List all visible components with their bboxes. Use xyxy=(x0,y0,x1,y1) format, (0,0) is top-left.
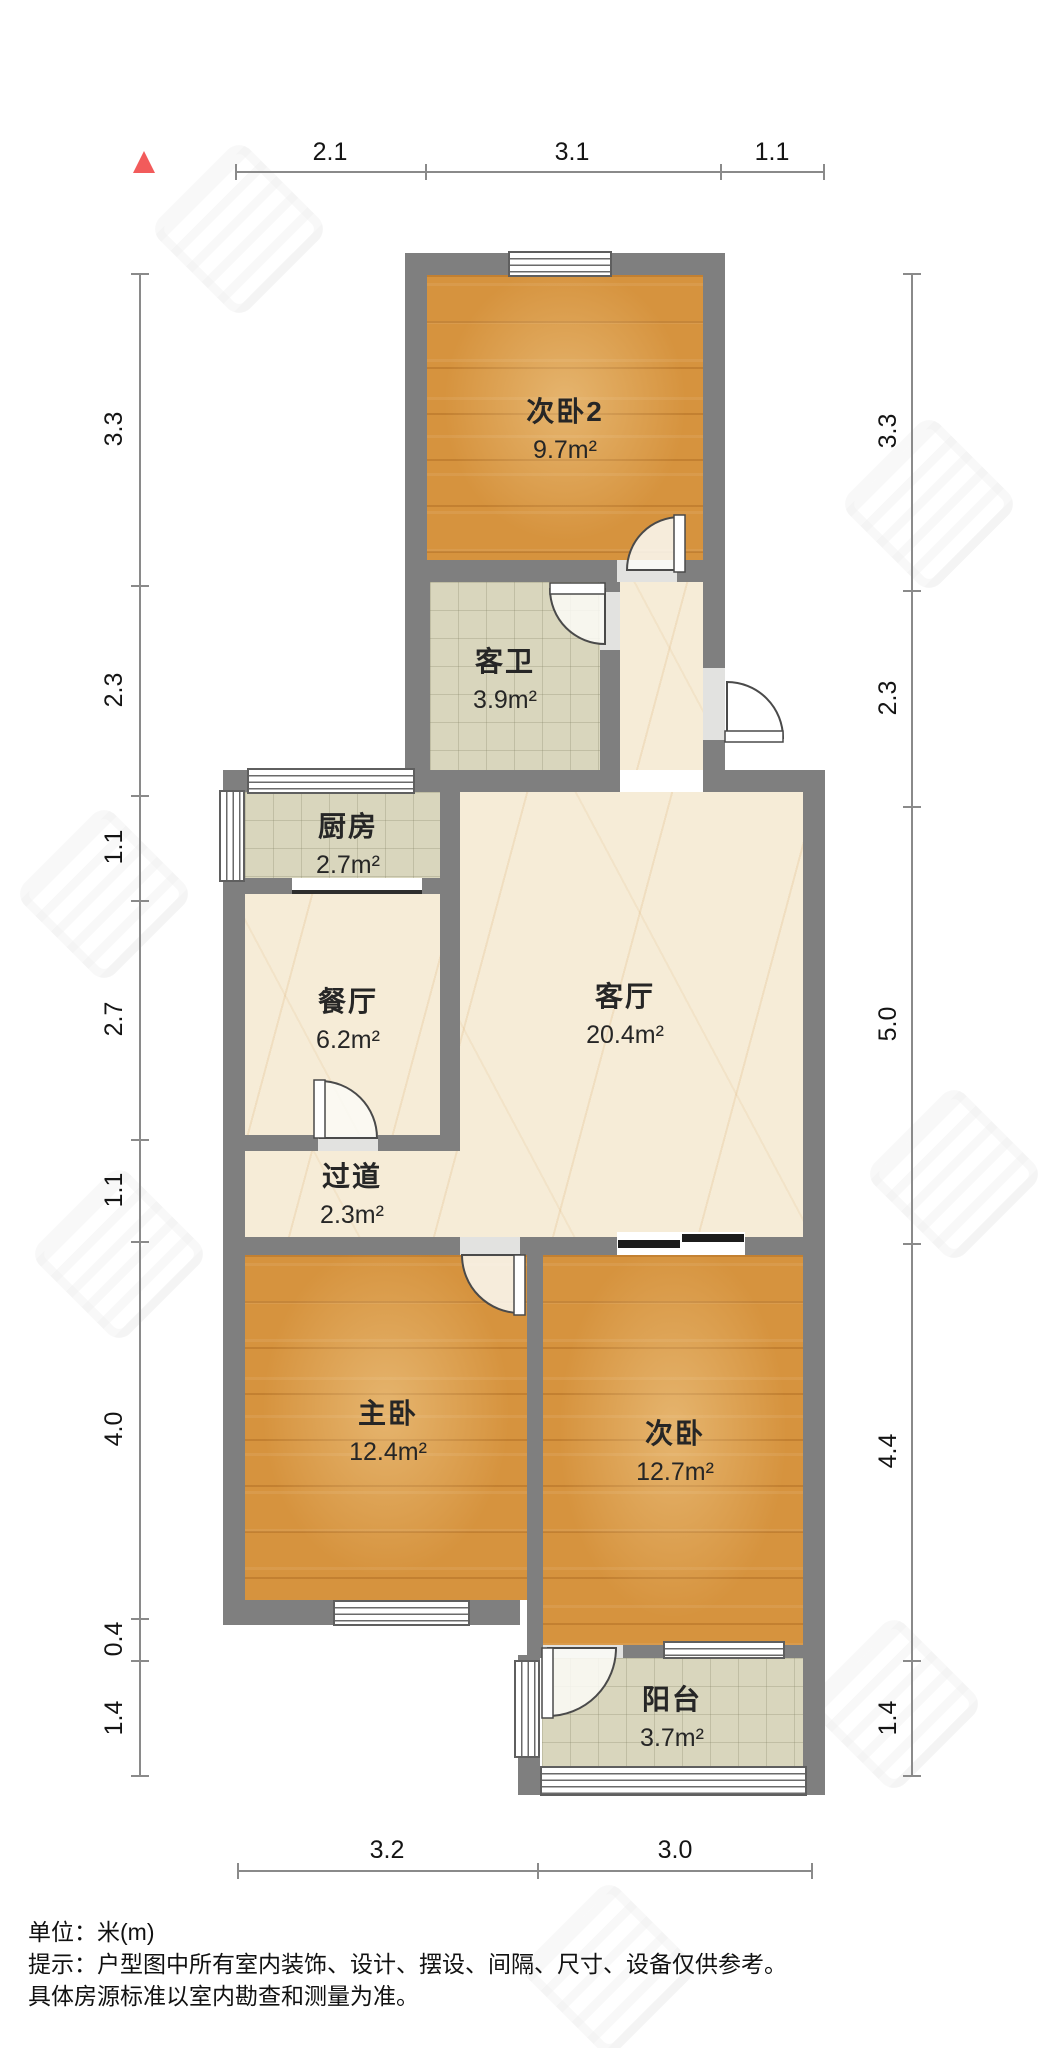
room-label-balcony: 阳台 3.7m² xyxy=(572,1678,772,1753)
dimension-label: 3.1 xyxy=(537,138,607,166)
dimension-tick xyxy=(131,795,149,797)
dimension-label: 3.0 xyxy=(640,1836,710,1864)
dimension-tick xyxy=(811,1863,813,1879)
room-label-master: 主卧 12.4m² xyxy=(288,1392,488,1467)
dimension-tick xyxy=(131,1139,149,1141)
room-name: 次卧 xyxy=(575,1412,775,1452)
sliding-door-panel xyxy=(682,1234,744,1242)
room-label-living: 客厅 20.4m² xyxy=(525,975,725,1050)
door-swing xyxy=(320,1081,377,1138)
room-name: 厨房 xyxy=(248,805,448,845)
dimension-tick xyxy=(903,806,921,808)
door-leaf xyxy=(314,1080,325,1138)
dimension-tick xyxy=(237,1863,239,1879)
door-swing xyxy=(462,1255,520,1313)
dimension-label: 2.7 xyxy=(100,984,128,1054)
room-label-bathroom: 客卫 3.9m² xyxy=(405,640,605,715)
room-label-dining: 餐厅 6.2m² xyxy=(248,980,448,1055)
dimension-tick xyxy=(131,1660,149,1662)
dimension-label: 3.3 xyxy=(100,394,128,464)
dimension-tick xyxy=(903,1775,921,1777)
dimension-tick xyxy=(131,900,149,902)
room-label-kitchen: 厨房 2.7m² xyxy=(248,805,448,880)
dimension-label: 1.4 xyxy=(874,1683,902,1753)
room-name: 阳台 xyxy=(572,1678,772,1718)
dimension-tick xyxy=(131,1241,149,1243)
dimension-tick xyxy=(537,1863,539,1879)
room-name: 主卧 xyxy=(288,1392,488,1432)
dimension-tick xyxy=(720,164,722,180)
door-leaf xyxy=(542,1648,553,1718)
dimension-line-bottom xyxy=(237,1870,813,1872)
room-label-hallway: 过道 2.3m² xyxy=(252,1155,452,1230)
dimension-tick xyxy=(903,590,921,592)
room-label-bedroom: 次卧 12.7m² xyxy=(575,1412,775,1487)
dimension-label: 3.2 xyxy=(352,1836,422,1864)
dimension-label: 4.0 xyxy=(100,1394,128,1464)
dimension-label: 3.3 xyxy=(874,396,902,466)
room-name: 客卫 xyxy=(405,640,605,680)
unit-note: 单位：米(m) xyxy=(28,1916,154,1948)
room-area: 20.4m² xyxy=(525,1021,725,1050)
door-swing xyxy=(627,517,680,570)
room-area: 3.7m² xyxy=(572,1724,772,1753)
dimension-label: 1.1 xyxy=(100,1155,128,1225)
dimension-tick xyxy=(131,273,149,275)
dimension-tick xyxy=(903,1660,921,1662)
room-area: 12.7m² xyxy=(575,1458,775,1487)
door-swing xyxy=(727,682,783,738)
room-label-bedroom2: 次卧2 9.7m² xyxy=(465,390,665,465)
dimension-tick xyxy=(235,164,237,180)
dimension-tick xyxy=(425,164,427,180)
room-name: 次卧2 xyxy=(465,390,665,430)
dimension-tick xyxy=(823,164,825,180)
sliding-door-panel xyxy=(618,1240,680,1248)
room-area: 2.7m² xyxy=(248,851,448,880)
disclaimer-line1: 提示：户型图中所有室内装饰、设计、摆设、间隔、尺寸、设备仅供参考。 xyxy=(28,1948,787,1980)
dimension-tick xyxy=(131,585,149,587)
dimension-line-right xyxy=(911,273,913,1777)
door-leaf xyxy=(674,515,685,572)
dimension-label: 1.4 xyxy=(100,1683,128,1753)
dimension-label: 2.3 xyxy=(100,655,128,725)
dimension-tick xyxy=(131,1775,149,1777)
room-area: 3.9m² xyxy=(405,686,605,715)
room-name: 客厅 xyxy=(525,975,725,1015)
room-area: 9.7m² xyxy=(465,436,665,465)
dimension-label: 1.1 xyxy=(100,812,128,882)
dimension-tick xyxy=(903,1243,921,1245)
dimension-line-left xyxy=(139,273,141,1777)
door-leaf xyxy=(550,583,605,594)
dimension-label: 5.0 xyxy=(874,989,902,1059)
dimension-label: 2.3 xyxy=(874,663,902,733)
dimension-label: 2.1 xyxy=(295,138,365,166)
doorway-threshold xyxy=(703,668,725,740)
floorplan-canvas: 次卧2 9.7m² 客卫 3.9m² 厨房 2.7m² 餐厅 6.2m² 客厅 … xyxy=(0,0,1053,2048)
door-swing xyxy=(550,589,605,644)
dimension-label: 1.1 xyxy=(737,138,807,166)
room-area: 12.4m² xyxy=(288,1438,488,1467)
room-name: 过道 xyxy=(252,1155,452,1195)
dimension-label: 4.4 xyxy=(874,1416,902,1486)
dimension-label: 0.4 xyxy=(100,1604,128,1674)
room-area: 2.3m² xyxy=(252,1201,452,1230)
dimension-tick xyxy=(903,273,921,275)
room-name: 餐厅 xyxy=(248,980,448,1020)
dimension-line-top xyxy=(235,171,825,173)
door-leaf xyxy=(725,731,783,742)
room-area: 6.2m² xyxy=(248,1026,448,1055)
disclaimer-line2: 具体房源标准以室内勘查和测量为准。 xyxy=(28,1980,419,2012)
door-leaf xyxy=(514,1255,525,1315)
dimension-tick xyxy=(131,1618,149,1620)
